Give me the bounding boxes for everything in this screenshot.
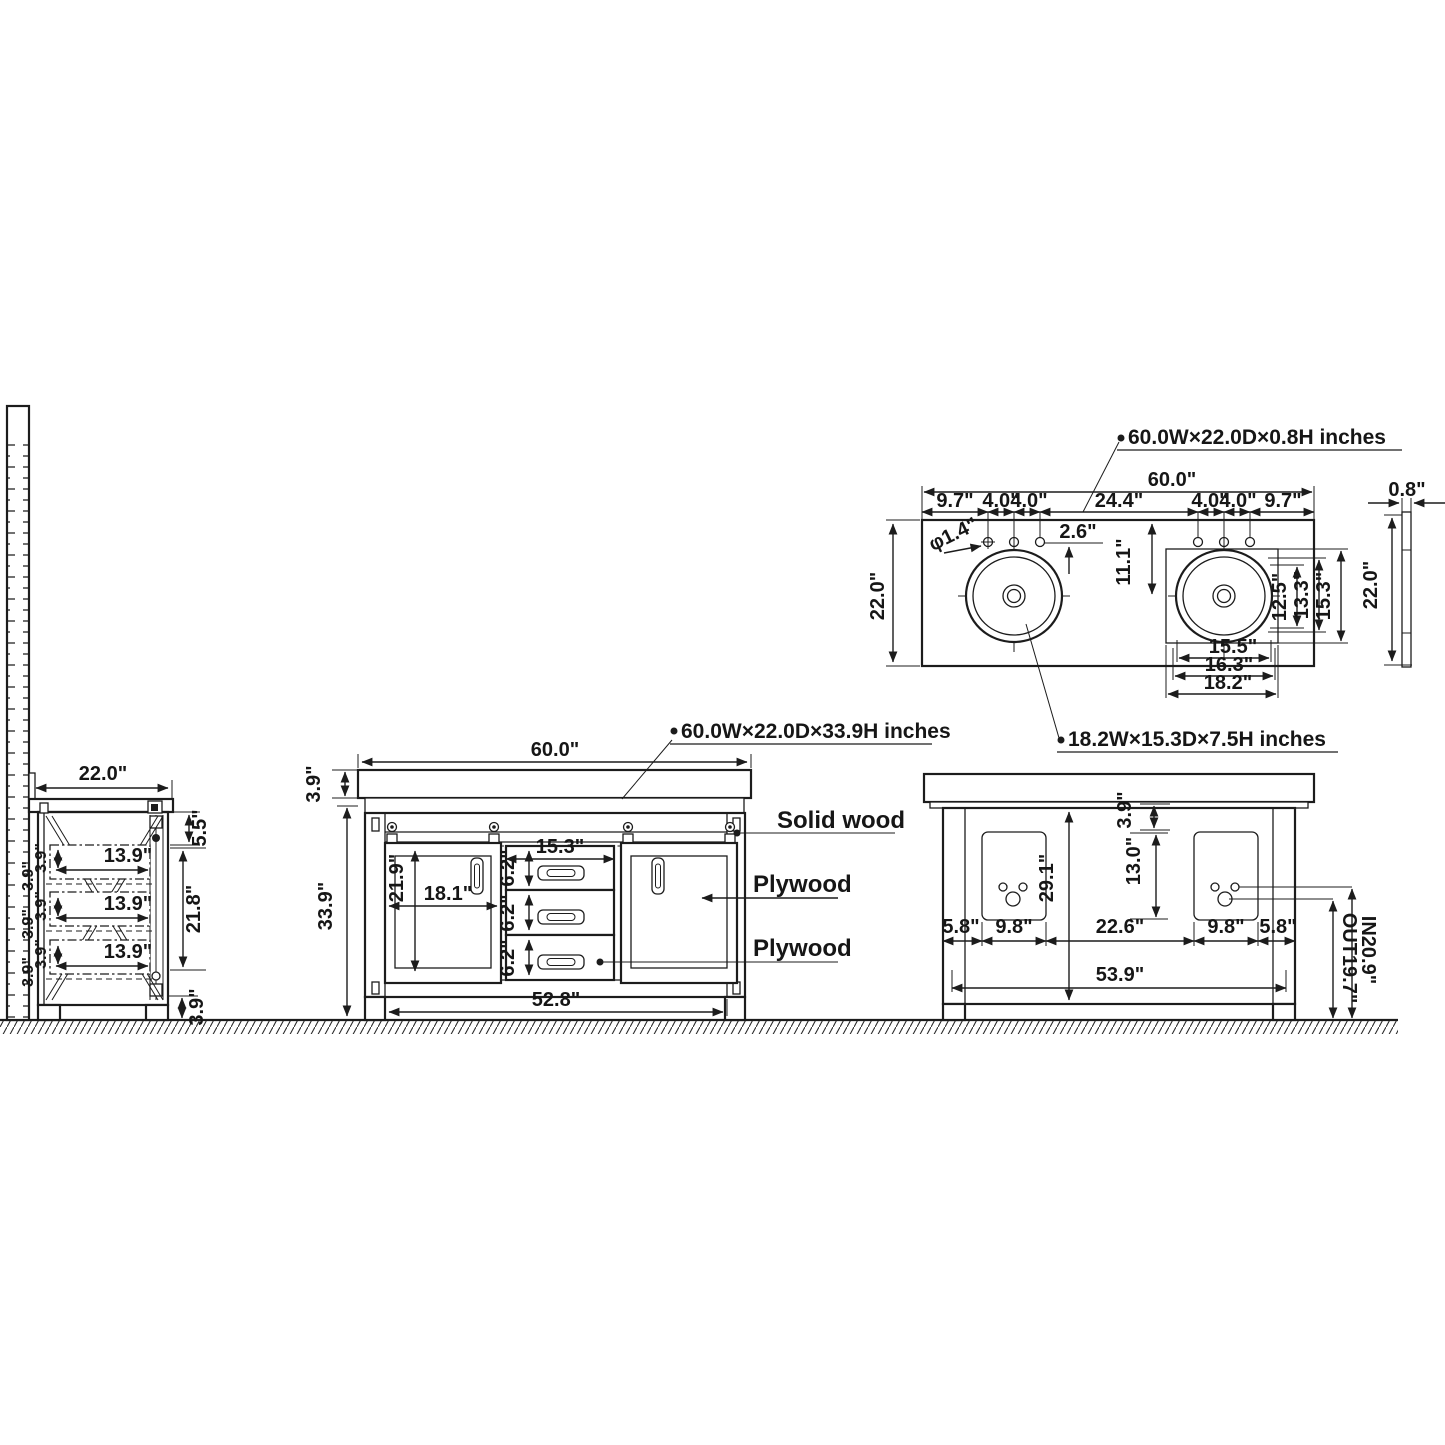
side-foot (146, 1005, 168, 1020)
drawing-canvas: 22.0" 5.5" 21.8" 3.9" 13.9" 13.9" 13.9" … (0, 0, 1445, 1445)
back-bottom-label: 9.8" (995, 916, 1032, 938)
top-size-title: 60.0W×22.0D×0.8H inches (1128, 426, 1386, 449)
drain (1213, 585, 1235, 607)
drawer-width-label: 15.3" (536, 836, 584, 858)
drawer-height-label: 3.9" (20, 861, 37, 891)
drain (1003, 585, 1025, 607)
opening-height-label: 29.1" (1036, 854, 1058, 902)
back-bottom-label: 9.8" (1207, 916, 1244, 938)
front-view: 60.0" 3.9" 33.9" 21.9" 18.1" 15.3" 6.2" … (303, 720, 951, 1020)
vanity-dimension-diagram: 22.0" 5.5" 21.8" 3.9" 13.9" 13.9" 13.9" … (0, 0, 1445, 1445)
supply-hole (1019, 883, 1027, 891)
top-depth-label: 22.0" (867, 572, 889, 620)
top-view: 60.0" 9.7" 4.0" 4.0" 24.4" 4.0" 4.0" 9.7… (867, 426, 1402, 752)
faucet-hole (1036, 538, 1045, 547)
plumbing-cutout (1194, 832, 1258, 920)
back-bottom-label: 5.8" (942, 916, 979, 938)
offset-label: 2.6" (1059, 521, 1096, 543)
supply-hole (999, 883, 1007, 891)
bullet (1118, 435, 1125, 442)
side-width-label: 22.0" (79, 763, 127, 785)
drawer-height-label: 3.9" (20, 957, 37, 987)
back-bottom-label: 22.6" (1096, 916, 1144, 938)
cutout-height-label: 13.0" (1123, 837, 1145, 885)
drawer-handle (538, 910, 584, 924)
drawer-height-label: 3.9" (20, 909, 37, 939)
top-width-label: 60.0" (1148, 469, 1196, 491)
ground-line (0, 1020, 1398, 1034)
inner-width-label: 53.9" (1096, 964, 1144, 986)
side-gap-label: 5.5" (189, 809, 211, 846)
sink-size-title: 18.2W×15.3D×7.5H inches (1068, 728, 1326, 751)
front-counter-lip (365, 798, 744, 813)
front-size-title: 60.0W×22.0D×33.9H inches (681, 720, 951, 743)
front-leg (365, 997, 385, 1020)
faucet-hole (1246, 538, 1255, 547)
edge-thickness-label: 0.8" (1388, 479, 1425, 501)
spacing-label: 9.7" (1264, 490, 1301, 512)
material-label-plywood: Plywood (753, 935, 852, 962)
knob (152, 834, 160, 842)
ground-hatch (0, 1021, 1398, 1034)
front-countertop (358, 770, 751, 798)
spacing-label: 4.0" (1010, 490, 1047, 512)
door-width-label: 18.1" (424, 883, 472, 905)
outlet-height-label: OUT19.7" (1338, 913, 1360, 1004)
drawer-height-label: 6.2" (497, 939, 519, 976)
side-view: 22.0" 5.5" 21.8" 3.9" 13.9" 13.9" 13.9" … (7, 406, 211, 1026)
front-leg (725, 997, 745, 1020)
drawer-depth-label: 13.9" (104, 845, 152, 867)
drain-hole (1006, 892, 1020, 906)
sink-dim-label: 12.5" (1269, 573, 1291, 621)
drawer-handle (538, 955, 584, 969)
back-bottom-label: 5.8" (1259, 916, 1296, 938)
drawer-height-label: 6.2" (497, 849, 519, 886)
back-counter-thickness-label: 3.9" (1114, 791, 1136, 828)
back-leg (1273, 1004, 1295, 1020)
front-width-label: 60.0" (531, 739, 579, 761)
front-height-label: 33.9" (315, 882, 337, 930)
supply-hole (1231, 883, 1239, 891)
bullet (671, 728, 678, 735)
edge-depth-label: 22.0" (1360, 561, 1382, 609)
edge-view: 0.8" 22.0" (1360, 479, 1445, 667)
door-height-label: 21.9" (386, 854, 408, 902)
drawer-depth-label: 13.9" (104, 893, 152, 915)
side-opening-label: 21.8" (183, 885, 205, 933)
drawer-depth-label: 13.9" (104, 941, 152, 963)
spacing-label: 4.0" (1219, 490, 1256, 512)
counter-thickness-label: 3.9" (303, 765, 325, 802)
faucet-hole (1194, 538, 1203, 547)
material-label-plywood: Plywood (753, 871, 852, 898)
spacing-label: 24.4" (1095, 490, 1143, 512)
base-width-label: 52.8" (532, 989, 580, 1011)
front-cabinet (358, 770, 751, 1020)
back-view: 3.9" 29.1" 13.0" 5.8" 9.8" 22.6" 9.8" 5.… (924, 774, 1379, 1020)
material-label-solid-wood: Solid wood (777, 807, 905, 834)
spacing-label: 9.7" (936, 490, 973, 512)
countertop-edge (1402, 512, 1411, 667)
drawer-height-label: 6.2" (497, 894, 519, 931)
backsplash-edge (29, 773, 35, 799)
back-leg (943, 1004, 965, 1020)
sink-dim-label: 15.3" (1313, 572, 1335, 620)
side-toe-label: 3.9" (186, 988, 208, 1025)
side-foot (38, 1005, 60, 1020)
drawer-handle (538, 866, 584, 880)
sink-dim-label: 13.3" (1291, 571, 1313, 619)
supply-hole (1211, 883, 1219, 891)
sink-dim-label: 18.2" (1204, 672, 1252, 694)
sink-center-label: 11.1" (1113, 538, 1135, 585)
